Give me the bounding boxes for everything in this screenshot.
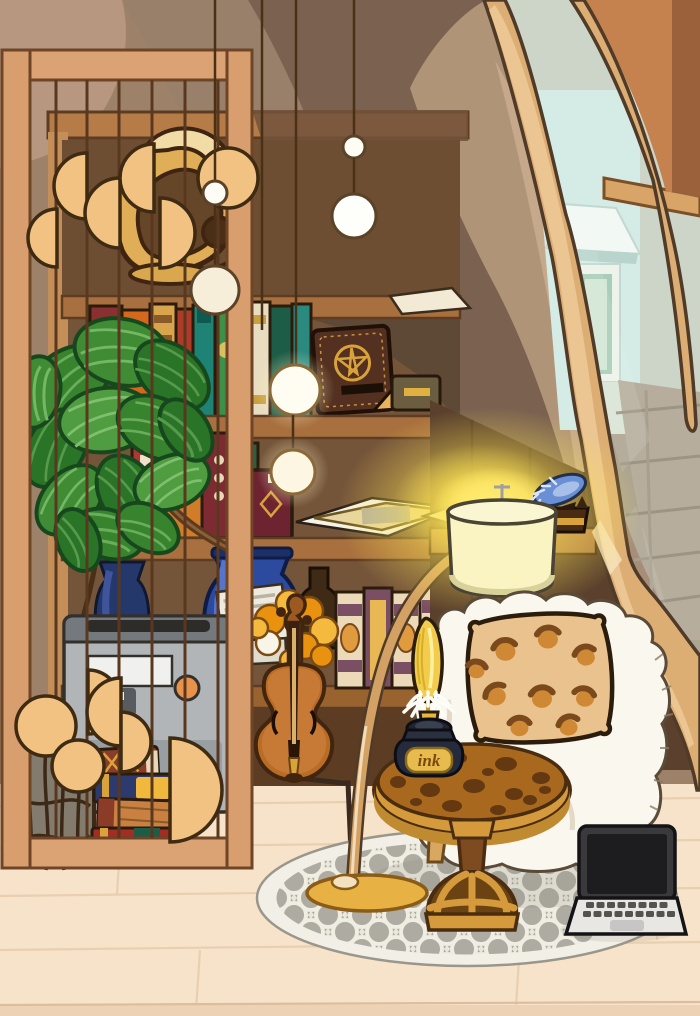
svg-text:ink: ink	[418, 751, 441, 770]
